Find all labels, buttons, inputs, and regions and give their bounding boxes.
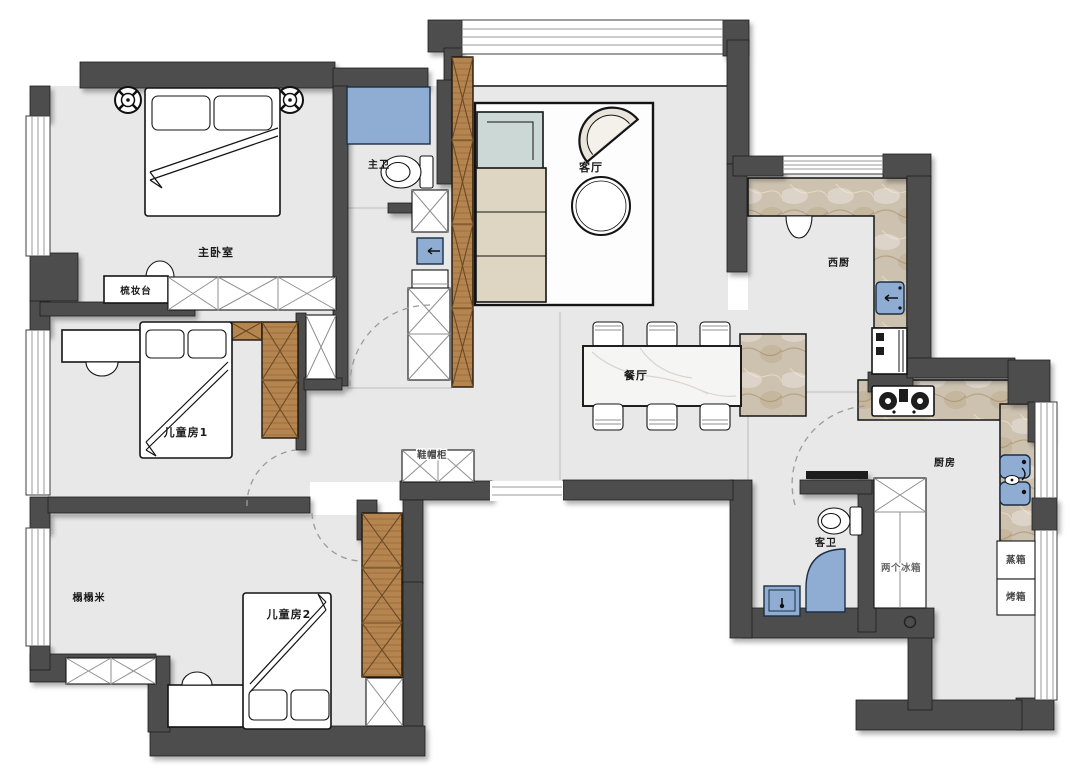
label-kids-room-2: 儿童房2 [266, 607, 312, 621]
floor-plan: 主卧室 梳妆台 主卫 客厅 西厨 餐厅 儿童房1 鞋帽柜 榻榻米 儿童房2 客卫… [0, 0, 1080, 771]
ceiling-light-1 [115, 87, 141, 113]
label-master-bedroom: 主卧室 [198, 245, 234, 259]
label-master-bath: 主卫 [368, 158, 390, 171]
island [740, 334, 806, 416]
label-tatami: 榻榻米 [73, 591, 106, 604]
label-guest-bath: 客卫 [814, 536, 837, 549]
bed-master [145, 88, 280, 216]
fridge-cabinet [874, 478, 926, 608]
label-two-fridges: 两个冰箱 [881, 562, 921, 574]
label-shoe-cabinet: 鞋帽柜 [417, 449, 447, 461]
sink-guest [764, 586, 800, 616]
tall-cabinet-living [452, 57, 473, 387]
window-kitchen-right-upper [1035, 402, 1057, 498]
dining-table [583, 346, 741, 406]
label-oven: 烤箱 [1006, 591, 1026, 603]
label-kitchen: 厨房 [934, 456, 956, 469]
label-west-kitchen: 西厨 [828, 257, 850, 269]
coffee-table [572, 177, 630, 235]
sink-west-kitchen [876, 282, 904, 314]
label-living-room: 客厅 [578, 160, 603, 174]
hob [872, 386, 934, 416]
guest-bath-door-leaf [806, 471, 868, 479]
dining-chairs-bottom [593, 404, 730, 430]
shower-master [347, 87, 430, 144]
window-living-top [462, 20, 723, 54]
label-kids-room-1: 儿童房1 [163, 425, 209, 439]
bath-cabinet-column [412, 190, 448, 298]
window-tatami [26, 528, 50, 646]
floor-tatami [48, 515, 160, 657]
window-kids1-bay [26, 330, 50, 495]
sofa [476, 112, 546, 302]
oven-west-kitchen [872, 328, 907, 374]
ceiling-light-2 [277, 87, 303, 113]
floor-plan-page: 主卧室 梳妆台 主卫 客厅 西厨 餐厅 儿童房1 鞋帽柜 榻榻米 儿童房2 客卫… [0, 0, 1080, 771]
entry-gap [490, 481, 563, 501]
label-steamer: 蒸箱 [1006, 554, 1026, 566]
cabinet-tatami [66, 658, 156, 684]
label-dining-room: 餐厅 [623, 368, 648, 382]
toilet-guest [818, 507, 862, 535]
label-dressing-table: 梳妆台 [120, 285, 152, 297]
window-west-kitchen [783, 156, 883, 174]
window-kitchen-right-lower [1035, 530, 1057, 700]
window-master-bay [26, 116, 50, 256]
wardrobe-kids2 [362, 513, 403, 726]
dining-chairs-top [593, 322, 730, 348]
closet-master [168, 277, 336, 310]
